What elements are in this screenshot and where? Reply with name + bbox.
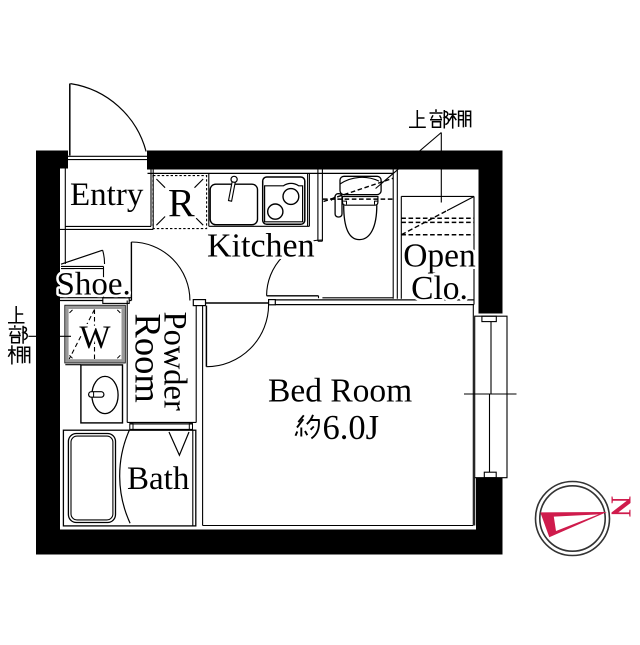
svg-text:6.0J: 6.0J <box>323 409 380 447</box>
svg-text:Bed Room: Bed Room <box>268 373 412 410</box>
svg-text:Kitchen: Kitchen <box>207 228 315 265</box>
svg-text:W: W <box>79 320 111 356</box>
svg-text:Room: Room <box>128 314 169 403</box>
svg-text:Shoe.: Shoe. <box>57 267 131 303</box>
svg-text:N: N <box>605 496 637 517</box>
svg-text:R: R <box>168 181 195 226</box>
svg-text:Entry: Entry <box>70 177 144 213</box>
svg-text:Clo.: Clo. <box>411 270 468 307</box>
svg-text:Open: Open <box>403 238 476 275</box>
svg-text:Bath: Bath <box>127 461 190 497</box>
